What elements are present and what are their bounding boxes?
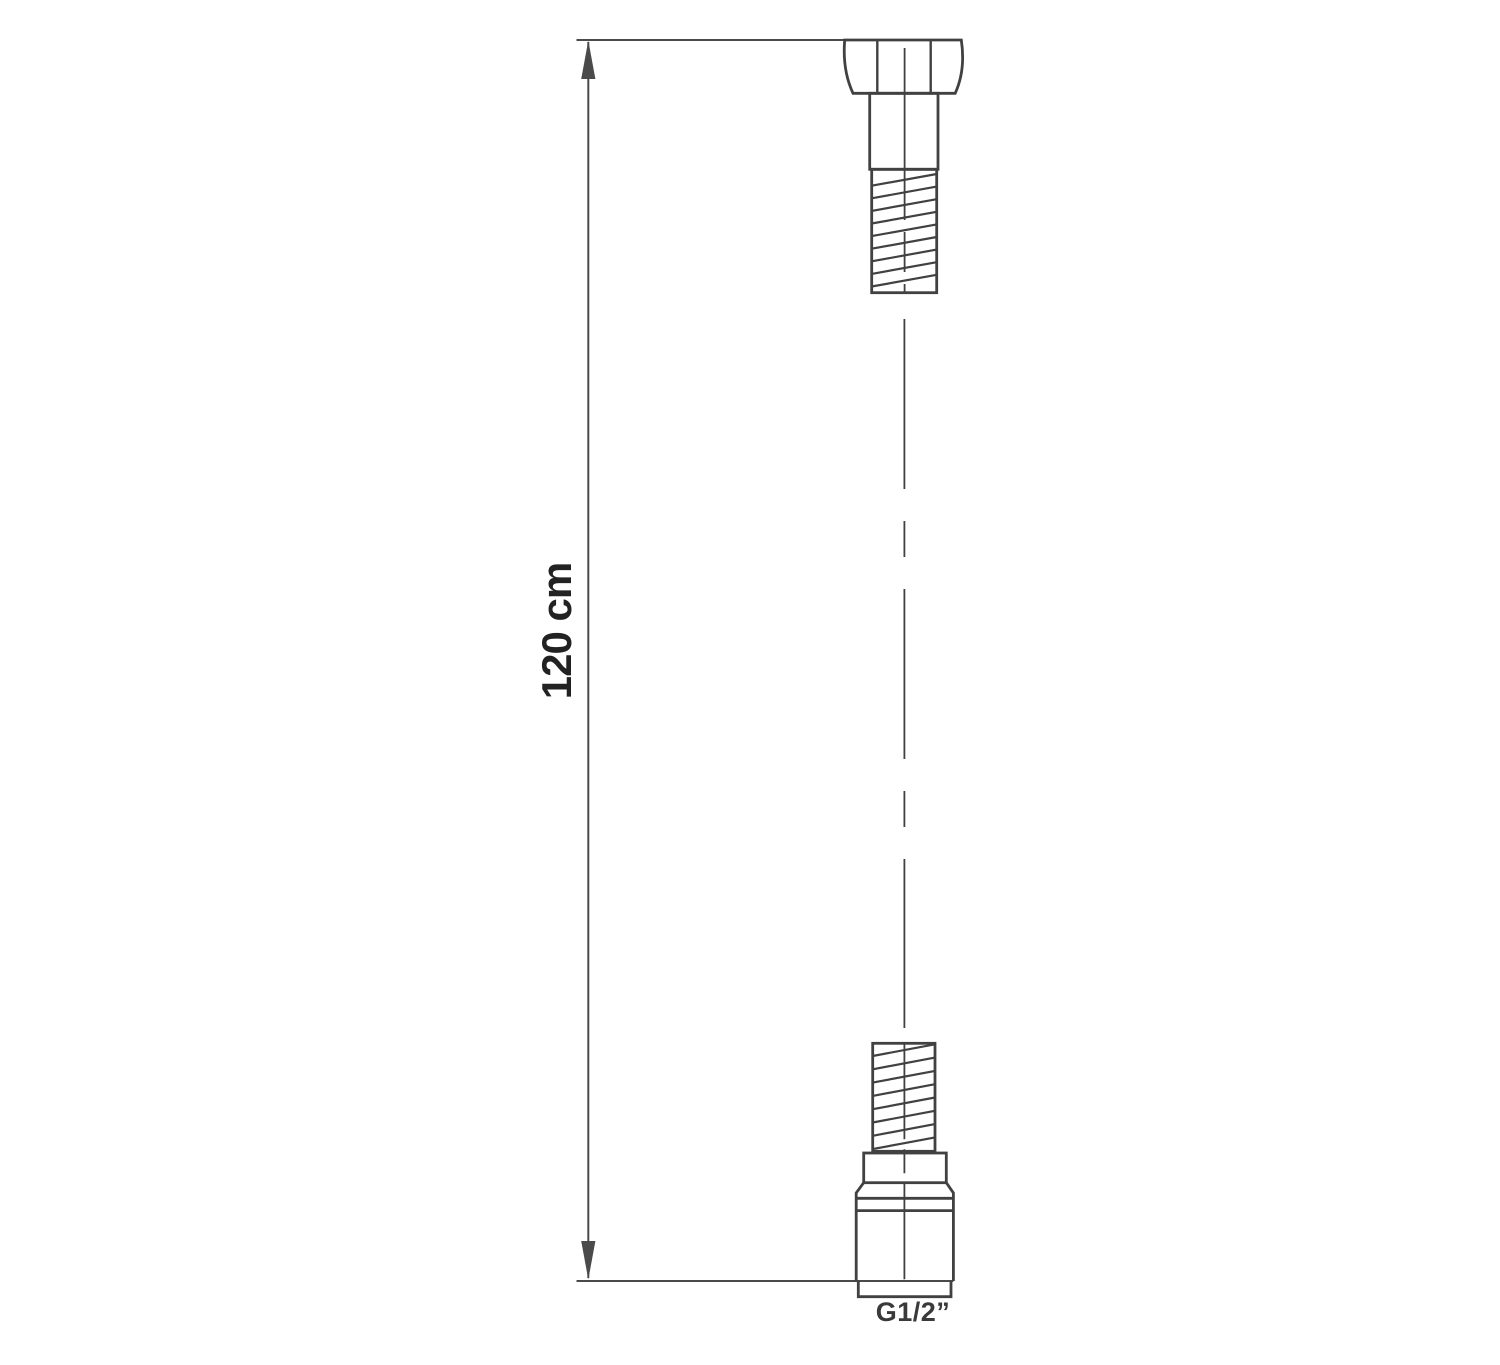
dimension-length-label: 120 cm bbox=[533, 563, 580, 699]
top-fitting bbox=[844, 40, 962, 293]
shower-hose-diagram: 120 cm bbox=[0, 0, 1500, 1365]
bottom-fitting: G1/2” bbox=[856, 1043, 953, 1327]
technical-drawing: 120 cm bbox=[0, 0, 1500, 1365]
top-fitting-nut bbox=[844, 40, 962, 93]
dimension-arrow-top-icon bbox=[581, 41, 595, 80]
thread-size-label: G1/2” bbox=[876, 1297, 951, 1327]
dimension-annotation: 120 cm bbox=[533, 40, 961, 1281]
dimension-arrow-bottom-icon bbox=[581, 1241, 595, 1280]
bottom-fitting-end-cap bbox=[858, 1281, 951, 1297]
